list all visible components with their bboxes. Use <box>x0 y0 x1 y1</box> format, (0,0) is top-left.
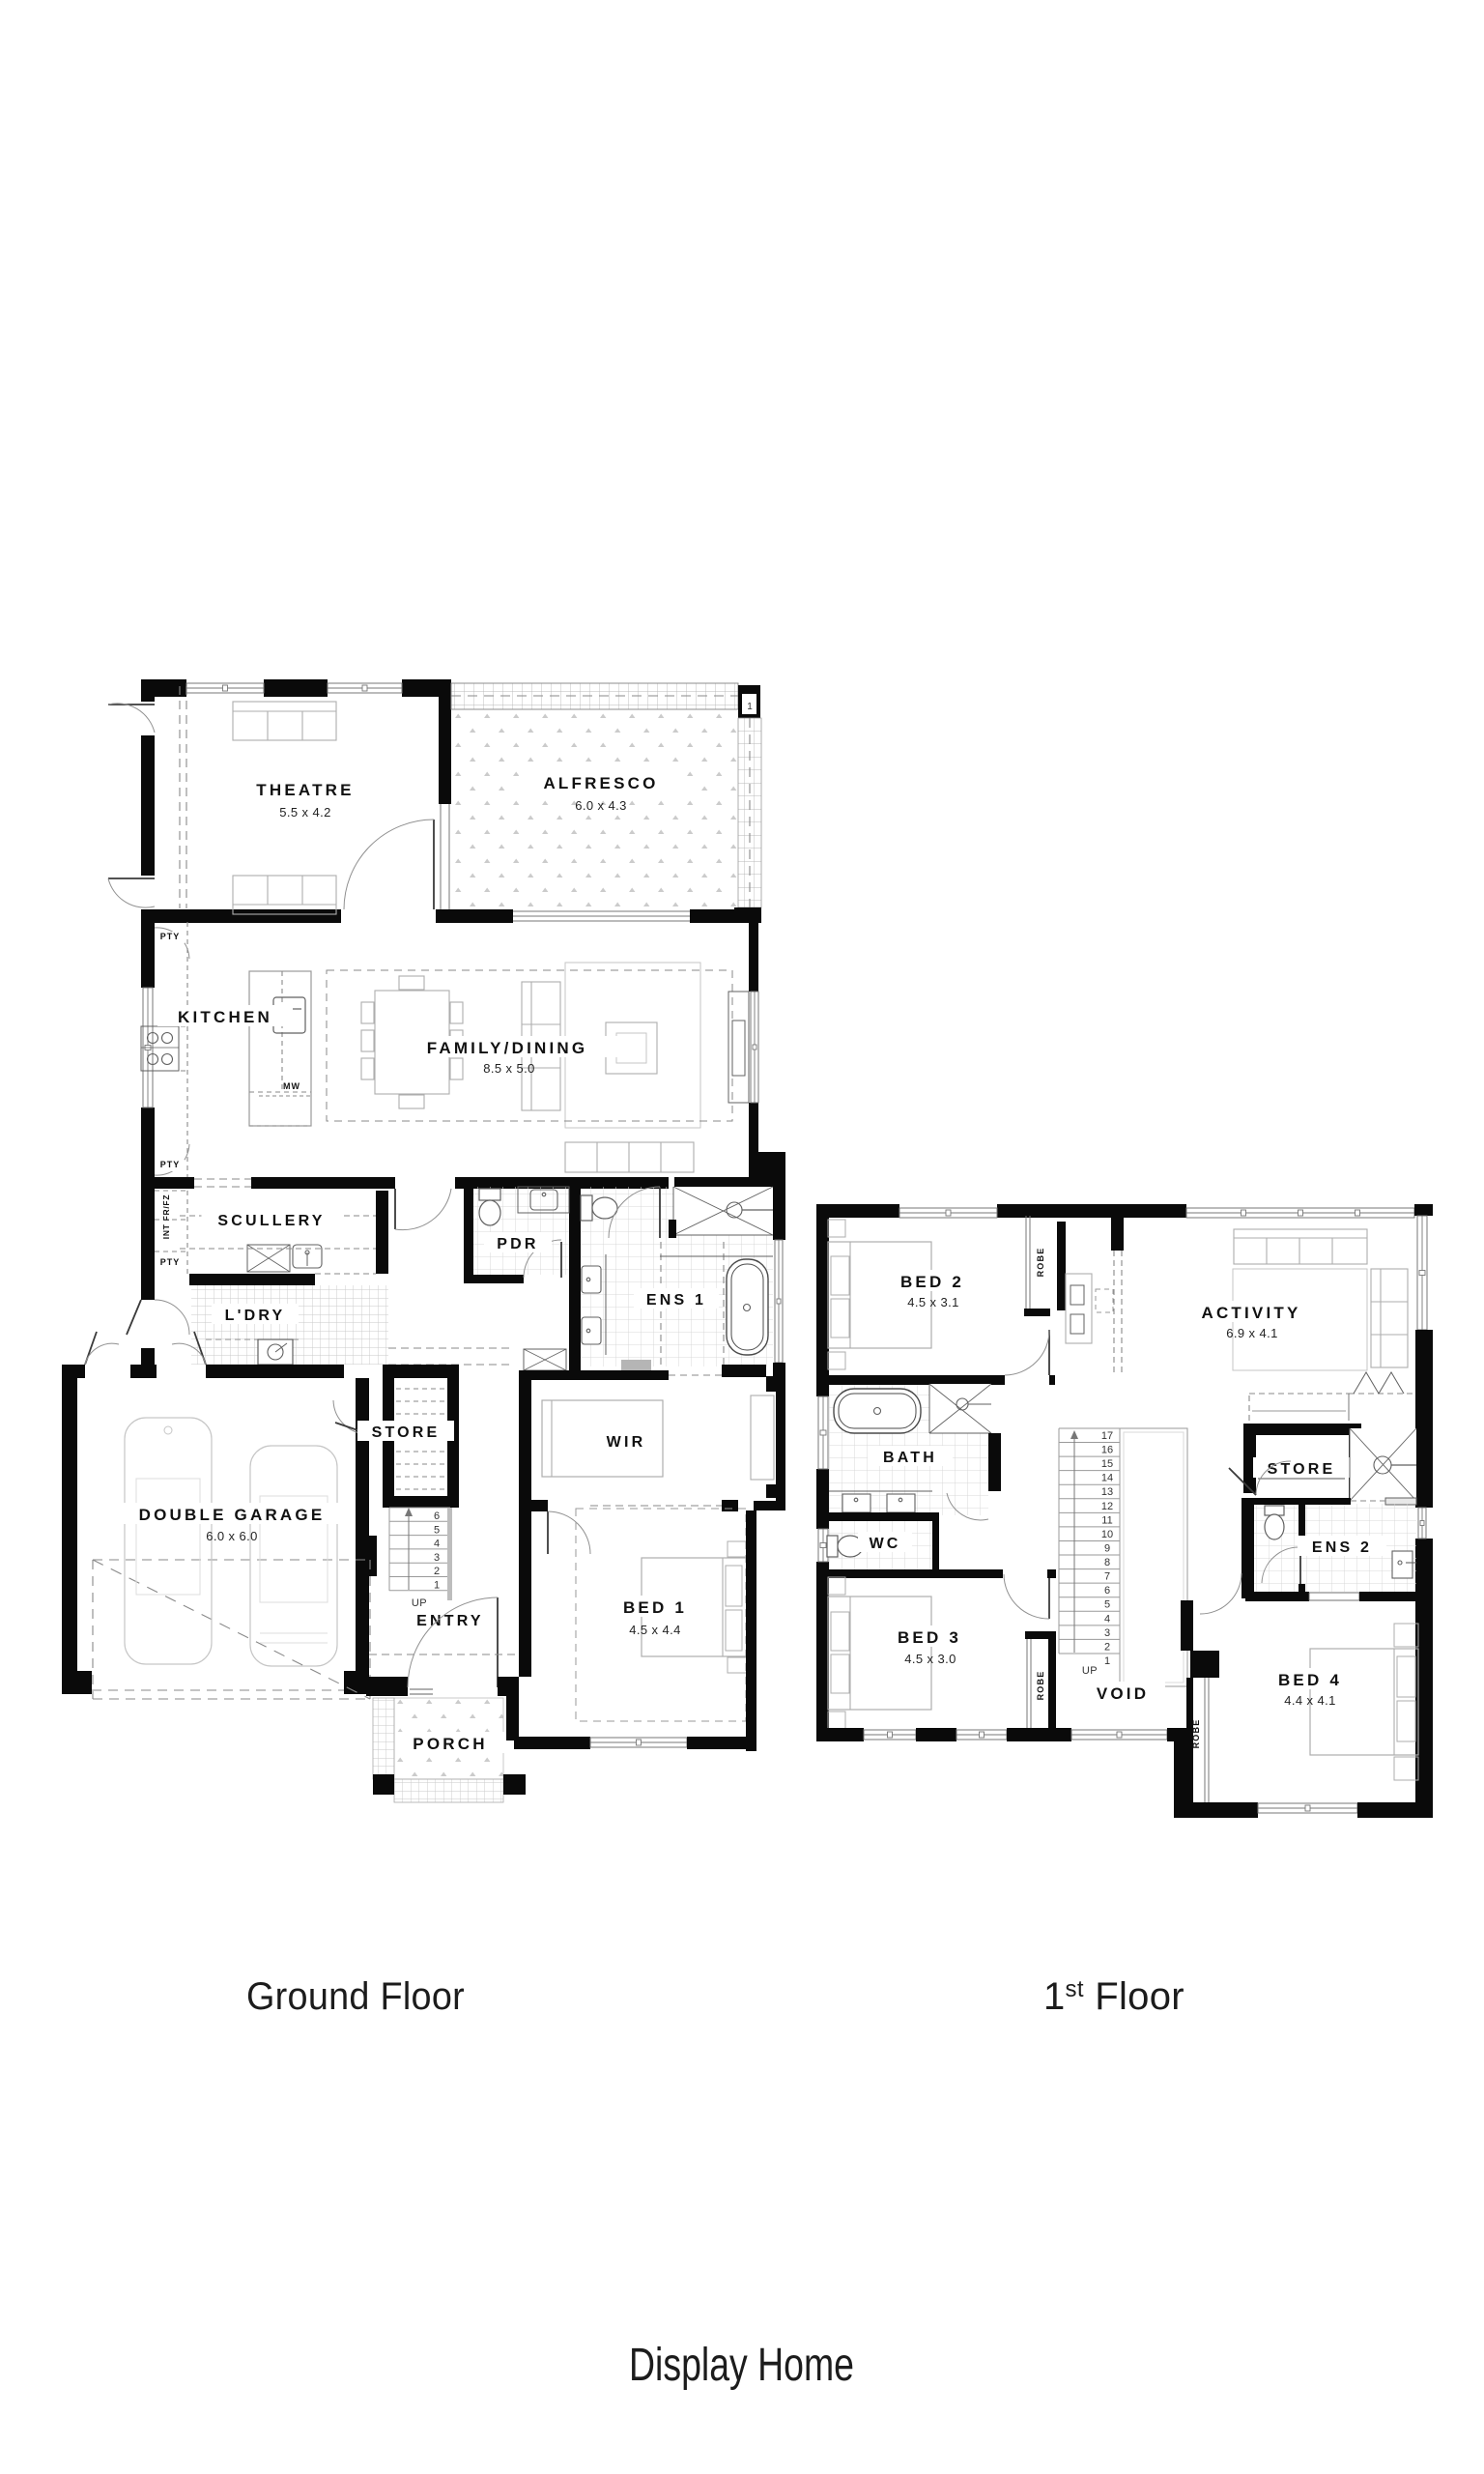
svg-text:11: 11 <box>1101 1514 1112 1526</box>
svg-text:PTY: PTY <box>160 1257 181 1267</box>
svg-text:7: 7 <box>1104 1571 1110 1583</box>
svg-text:3: 3 <box>1104 1627 1110 1639</box>
svg-text:BED 2: BED 2 <box>900 1273 964 1291</box>
svg-text:5.5 x 4.2: 5.5 x 4.2 <box>279 805 330 820</box>
svg-text:3: 3 <box>434 1552 440 1564</box>
svg-text:6.9 x 4.1: 6.9 x 4.1 <box>1226 1326 1277 1340</box>
svg-text:ALFRESCO: ALFRESCO <box>543 774 658 792</box>
svg-text:4.5 x 3.0: 4.5 x 3.0 <box>904 1652 956 1666</box>
svg-text:6.0 x 4.3: 6.0 x 4.3 <box>575 798 626 813</box>
svg-text:WC: WC <box>870 1536 901 1552</box>
svg-text:8.5 x 5.0: 8.5 x 5.0 <box>483 1061 534 1076</box>
svg-text:ENS 1: ENS 1 <box>646 1292 706 1309</box>
svg-text:4.5 x 3.1: 4.5 x 3.1 <box>907 1295 958 1309</box>
svg-text:1st Floor: 1st Floor <box>1043 1975 1184 2018</box>
svg-text:UP: UP <box>412 1597 427 1609</box>
svg-text:14: 14 <box>1101 1473 1113 1484</box>
svg-text:WIR: WIR <box>607 1434 646 1451</box>
svg-text:SCULLERY: SCULLERY <box>217 1213 325 1229</box>
svg-text:PTY: PTY <box>160 1160 181 1169</box>
svg-text:STORE: STORE <box>372 1424 441 1441</box>
svg-text:MW: MW <box>283 1081 300 1091</box>
svg-text:ROBE: ROBE <box>1036 1248 1045 1278</box>
svg-text:PORCH: PORCH <box>413 1735 487 1753</box>
svg-text:VOID: VOID <box>1097 1684 1149 1703</box>
svg-text:KITCHEN: KITCHEN <box>178 1008 272 1026</box>
svg-text:17: 17 <box>1101 1430 1113 1442</box>
svg-text:FAMILY/DINING: FAMILY/DINING <box>427 1039 588 1057</box>
svg-text:10: 10 <box>1101 1529 1113 1540</box>
svg-text:6: 6 <box>1104 1585 1110 1597</box>
svg-text:BED 1: BED 1 <box>623 1598 687 1617</box>
svg-text:8: 8 <box>1104 1557 1110 1568</box>
svg-text:L'DRY: L'DRY <box>225 1308 286 1324</box>
svg-text:ROBE: ROBE <box>1191 1719 1201 1749</box>
svg-text:5: 5 <box>434 1524 440 1536</box>
svg-text:2: 2 <box>1104 1641 1110 1653</box>
svg-text:ENS 2: ENS 2 <box>1312 1539 1372 1556</box>
svg-text:Ground Floor: Ground Floor <box>246 1975 465 2018</box>
svg-text:12: 12 <box>1101 1501 1113 1512</box>
svg-text:4: 4 <box>434 1539 440 1550</box>
svg-text:1: 1 <box>1104 1655 1110 1667</box>
svg-text:ROBE: ROBE <box>1036 1671 1045 1701</box>
svg-text:UP: UP <box>1082 1665 1098 1677</box>
svg-text:PDR: PDR <box>497 1236 538 1252</box>
svg-text:INT FR/FZ: INT FR/FZ <box>161 1194 171 1239</box>
svg-text:13: 13 <box>1101 1486 1113 1498</box>
svg-text:5: 5 <box>1104 1599 1110 1611</box>
svg-text:Display Home: Display Home <box>629 2340 854 2391</box>
svg-text:ENTRY: ENTRY <box>416 1613 484 1629</box>
svg-text:BED 3: BED 3 <box>898 1628 961 1647</box>
svg-text:16: 16 <box>1101 1445 1113 1456</box>
svg-text:15: 15 <box>1101 1458 1113 1470</box>
svg-text:4.5 x 4.4: 4.5 x 4.4 <box>629 1623 680 1637</box>
svg-text:4.4 x 4.1: 4.4 x 4.1 <box>1284 1693 1335 1708</box>
svg-text:6.0 x 6.0: 6.0 x 6.0 <box>206 1529 257 1543</box>
svg-text:ACTIVITY: ACTIVITY <box>1201 1304 1300 1322</box>
svg-text:THEATRE: THEATRE <box>256 781 354 799</box>
svg-text:1: 1 <box>434 1580 440 1592</box>
svg-text:9: 9 <box>1104 1542 1110 1554</box>
svg-text:BED 4: BED 4 <box>1278 1671 1342 1689</box>
svg-text:PTY: PTY <box>160 932 181 941</box>
svg-text:6: 6 <box>434 1510 440 1522</box>
svg-text:4: 4 <box>1104 1613 1110 1625</box>
svg-text:1: 1 <box>747 702 753 712</box>
svg-text:DOUBLE GARAGE: DOUBLE GARAGE <box>139 1506 326 1524</box>
svg-text:2: 2 <box>434 1566 440 1577</box>
svg-text:BATH: BATH <box>883 1450 937 1466</box>
